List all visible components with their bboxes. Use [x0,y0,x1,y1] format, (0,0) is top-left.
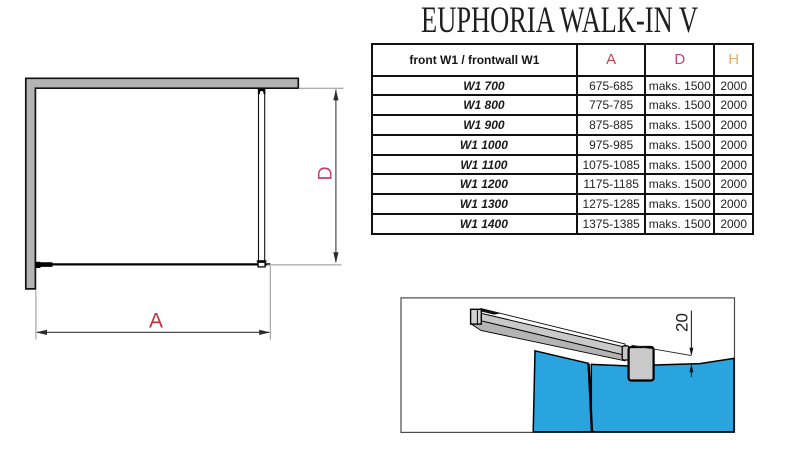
svg-text:A: A [149,310,163,333]
svg-text:D: D [314,166,336,180]
svg-text:20: 20 [672,313,691,332]
